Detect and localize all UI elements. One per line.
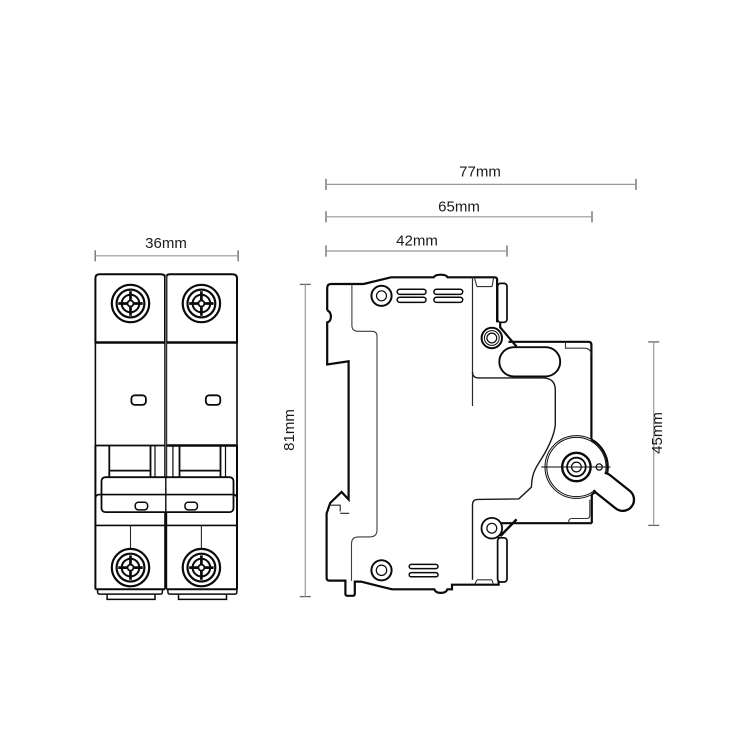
svg-text:36mm: 36mm	[145, 235, 187, 252]
svg-text:42mm: 42mm	[396, 233, 438, 250]
svg-text:45mm: 45mm	[649, 412, 666, 454]
svg-text:65mm: 65mm	[438, 199, 480, 216]
svg-text:81mm: 81mm	[281, 409, 298, 451]
svg-text:77mm: 77mm	[459, 164, 501, 181]
